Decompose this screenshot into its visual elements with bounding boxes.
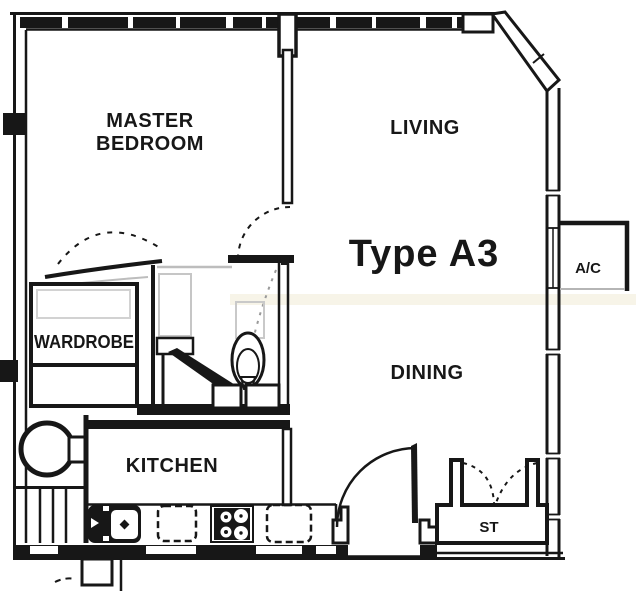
wall-column <box>3 113 27 135</box>
kitchen-right-wall <box>283 429 291 505</box>
ac-ledge-label: A/C <box>575 260 601 277</box>
wall-column <box>463 14 493 32</box>
wash-basin-tap <box>69 437 85 462</box>
kitchen-sink <box>88 505 141 543</box>
door-leaf <box>411 443 418 523</box>
living-label: LIVING <box>390 117 460 139</box>
vanity-basin <box>246 385 279 408</box>
floor-plan-drawing: MASTER BEDROOM LIVING Type A3 A/C DINING… <box>0 0 636 600</box>
wardrobe-label: WARDROBE <box>34 332 134 352</box>
scan-smudge <box>230 294 636 305</box>
unit-type-title: Type A3 <box>349 233 500 275</box>
kitchen-top-wall <box>84 420 290 429</box>
vanity-counter <box>213 385 241 408</box>
master-bedroom-label-line1: MASTER <box>106 110 194 132</box>
wash-basin <box>21 423 73 475</box>
wall-column <box>0 360 18 382</box>
exterior-step <box>82 559 112 585</box>
store-label: ST <box>479 519 498 536</box>
top-window-band <box>20 17 490 28</box>
bedroom-living-wall <box>283 50 292 203</box>
floor-plan-scan: MASTER BEDROOM LIVING Type A3 A/C DINING… <box>0 0 636 600</box>
door-hinge-block <box>281 257 289 265</box>
master-bedroom-label-line2: BEDROOM <box>96 133 204 155</box>
stove <box>211 506 253 542</box>
dining-label: DINING <box>391 362 464 384</box>
kitchen-label: KITCHEN <box>126 455 218 477</box>
